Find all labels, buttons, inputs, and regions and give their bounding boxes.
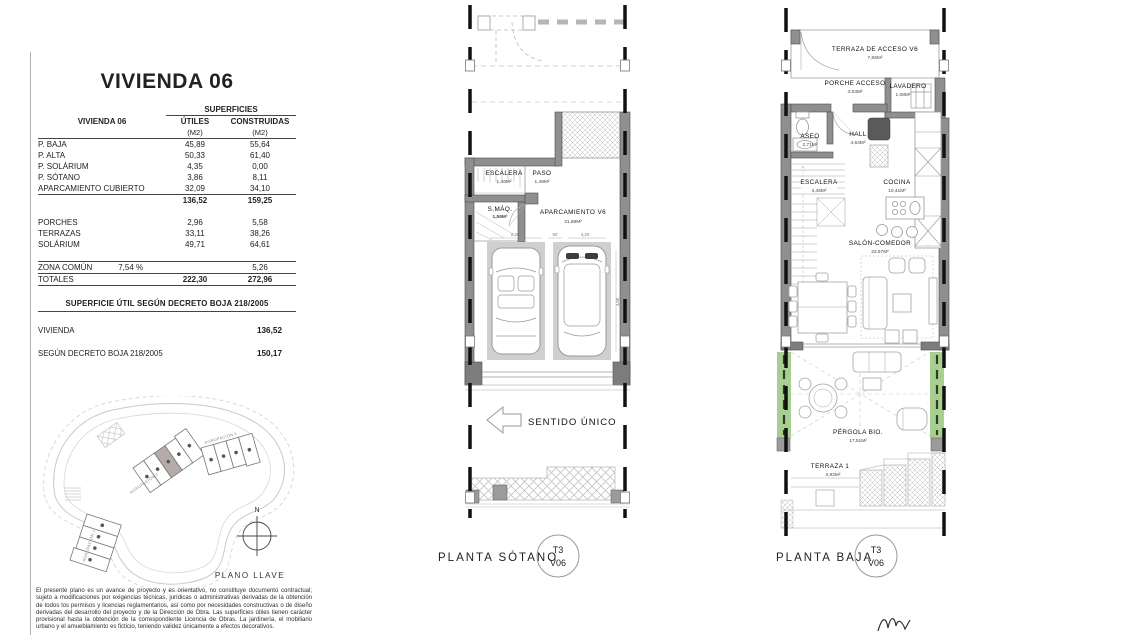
north-compass-icon: N [237,507,277,556]
room-label: ESCALERA [485,170,523,177]
sliding-door [803,344,921,347]
room-label: S.MÁQ. [488,204,513,213]
ramp-trellis [466,467,630,507]
page-title: VIVIENDA 06 [38,70,296,94]
svg-text:1,46M²: 1,46M² [497,179,512,185]
car-convertible [489,248,543,354]
svg-text:31,88M²: 31,88M² [564,219,582,225]
subtotal-row: 136,52 159,25 [38,195,296,207]
terrace-steps [781,453,945,528]
unit-construidas: (M2) [224,127,296,139]
svg-text:17,51M²: 17,51M² [849,438,867,444]
signature-mark [870,608,930,635]
plano-llave-caption: PLANO LLAVE [215,571,285,580]
table-row: VIVIENDA 136,52 [38,326,296,335]
living-set [861,256,937,343]
room-label: ASEO [800,133,819,140]
plan-caption-sotano: PLANTA SÓTANO [438,551,558,564]
areas-table: VIVIENDA 06 SUPERFICIES ÚTILES CONSTRUID… [38,104,296,286]
totales-row: TOTALES 222,30 272,96 [38,274,296,286]
garage-door [465,372,630,390]
hatched-terrace-area [562,112,620,158]
room-label: PASO [533,170,552,177]
green-strip-right [930,352,944,438]
svg-text:23,67M²: 23,67M² [871,249,889,255]
table-row: P. SÓTANO 3,86 8,11 [38,172,296,183]
site-units-agrupacion1 [70,513,121,571]
site-key-plan: AGRUPACIÓN 2 AGRUPACIÓN 3 AGRUPACIÓN 1 N… [35,396,307,592]
direction-label: SENTIDO ÚNICO [528,417,616,428]
svg-text:4,64M²: 4,64M² [851,140,866,146]
kitchen-island [877,197,925,238]
planta-sotano-plan: 2,20 50 4,20 4,50 ESCALERA 1,46M² PASO 1… [430,0,660,585]
svg-text:3,53M²: 3,53M² [848,89,863,95]
table-row: TERRAZAS 33,11 38,26 [38,228,296,239]
room-label: SALÓN-COMEDOR [849,238,911,247]
room-label: PORCHE ACCESO [825,80,886,87]
room-label: TERRAZA 1 [811,463,849,470]
table-row: APARCAMIENTO CUBIERTO 32,09 34,10 [38,183,296,195]
room-label: PÉRGOLA BIO. [833,427,883,436]
terraza-acceso [791,30,939,78]
table-row: P. SOLÁRIUM 4,35 0,00 [38,161,296,172]
svg-text:1,59M²: 1,59M² [493,214,508,220]
svg-text:1,08M²: 1,08M² [896,92,911,98]
planta-baja-plan: TERRAZA DE ACCESO V6 7,66M² LAVADERO 1,0… [745,0,975,585]
svg-text:N: N [254,507,259,514]
areas-corner-label: VIVIENDA 06 [38,104,166,139]
unit-utiles: (M2) [166,127,224,139]
room-label: TERRAZA DE ACCESO V6 [832,46,918,53]
toilet-icon [796,112,809,135]
dim-mid: 50 [553,232,558,237]
room-label: APARCAMIENTO V6 [540,209,606,216]
table-row: P. ALTA 50,33 61,40 [38,150,296,161]
col-header-construidas: CONSTRUIDAS [224,116,296,128]
room-label: COCINA [883,179,911,186]
svg-text:7,66M²: 7,66M² [868,55,883,61]
table-row: PORCHES 2,96 5,58 [38,217,296,228]
decreto-header: SUPERFICIE ÚTIL SEGÚN DECRETO BOJA 218/2… [38,299,296,312]
svg-text:2,71M²: 2,71M² [803,142,818,148]
col-header-utiles: ÚTILES [166,116,224,128]
upper-floor-projection [472,16,626,102]
dim-vert: 4,50 [615,297,620,306]
table-row: SEGÚN DECRETO BOJA 218/2005 150,17 [38,349,296,358]
svg-text:T3: T3 [553,545,564,555]
svg-text:1,49M²: 1,49M² [535,179,550,185]
svg-text:10,41M²: 10,41M² [888,188,906,194]
dim-left: 2,20 [511,232,520,237]
dining-set [789,273,856,342]
table-row: P. BAJA 45,89 55,64 [38,139,296,151]
site-pool [97,422,125,447]
room-label: HALL [849,131,867,138]
car-suv [555,246,609,356]
disclaimer-text: El presente plano es un avance de proyec… [36,588,312,632]
page-border-line [30,52,31,635]
plan-caption-baja: PLANTA BAJA [776,552,873,564]
dim-right: 4,20 [581,232,590,237]
svg-text:V06: V06 [550,558,566,568]
room-label: LAVADERO [889,83,926,90]
green-strip-left [777,352,791,438]
svg-text:3,92M²: 3,92M² [826,472,841,478]
table-row: SOLÁRIUM 49,71 64,61 [38,239,296,250]
svg-text:V06: V06 [868,558,884,568]
areas-group-header: SUPERFICIES [166,104,296,116]
plan-sheet: VIVIENDA 06 VIVIENDA 06 SUPERFICIES ÚTIL… [0,0,1130,635]
zona-comun-row: ZONA COMÚN 7,54 % 5,26 [38,262,296,274]
svg-text:4,46M²: 4,46M² [812,188,827,194]
decreto-table: SUPERFICIE ÚTIL SEGÚN DECRETO BOJA 218/2… [38,299,296,358]
one-way-arrow-icon [487,407,521,433]
svg-text:T3: T3 [871,545,882,555]
room-label: ESCALERA [800,179,838,186]
